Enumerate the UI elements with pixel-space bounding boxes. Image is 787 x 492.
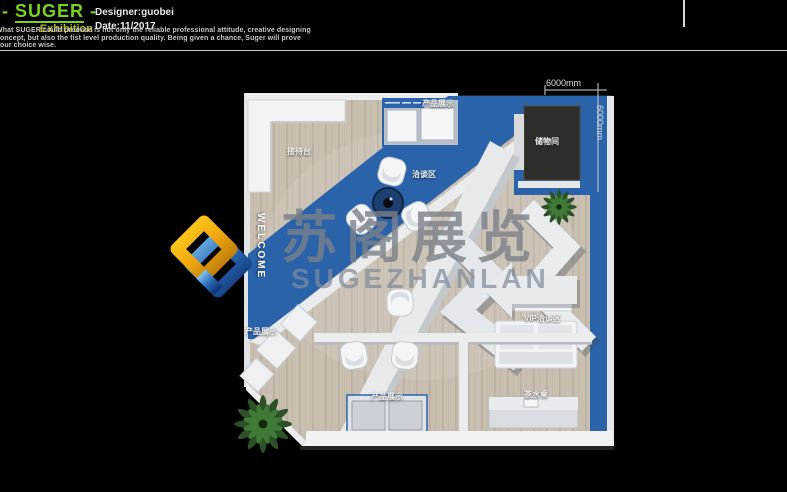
- header-divider: [0, 50, 787, 51]
- company-tagline: What SUGER could promise is not only the…: [0, 27, 312, 50]
- top-right-rule: [683, 0, 685, 27]
- presentation-board: - SUGER - Exhibition Designer:guobei Dat…: [0, 0, 787, 492]
- logo-dash-left: -: [2, 1, 9, 21]
- suger-logo-wordmark: - SUGER -: [2, 1, 107, 22]
- label-product-display-top: 产品展示: [422, 98, 454, 109]
- right-wall-outer: [607, 96, 614, 447]
- tea-table: [489, 397, 578, 428]
- watermark-chinese: 苏阁展览: [281, 210, 541, 266]
- designer-credit: Designer:guobei: [95, 6, 174, 20]
- label-meeting-area: 洽谈区: [412, 169, 436, 180]
- right-wall: [590, 96, 609, 445]
- label-vip-meeting-area: VIP洽谈区: [524, 313, 561, 324]
- watermark-logo-icon: [163, 208, 258, 303]
- label-product-display-left: 产品展示: [245, 326, 277, 337]
- label-reception-desk: 接待台: [287, 146, 311, 157]
- dimension-width: 6000mm: [546, 78, 581, 88]
- dimension-depth: 6000mm: [595, 105, 605, 140]
- vertical-partition: [459, 342, 468, 434]
- bottom-wall-shadow: [300, 446, 614, 450]
- watermark-english: SUGEZHANLAN: [291, 264, 550, 294]
- label-tea-table: 茶水桌: [524, 389, 548, 400]
- logo-name: SUGER: [15, 1, 84, 23]
- label-product-display-bottom: 产品展示: [371, 391, 403, 402]
- bottom-wall: [306, 431, 612, 446]
- label-storage-room: 储物间: [535, 136, 559, 147]
- horizontal-partition: [314, 333, 592, 342]
